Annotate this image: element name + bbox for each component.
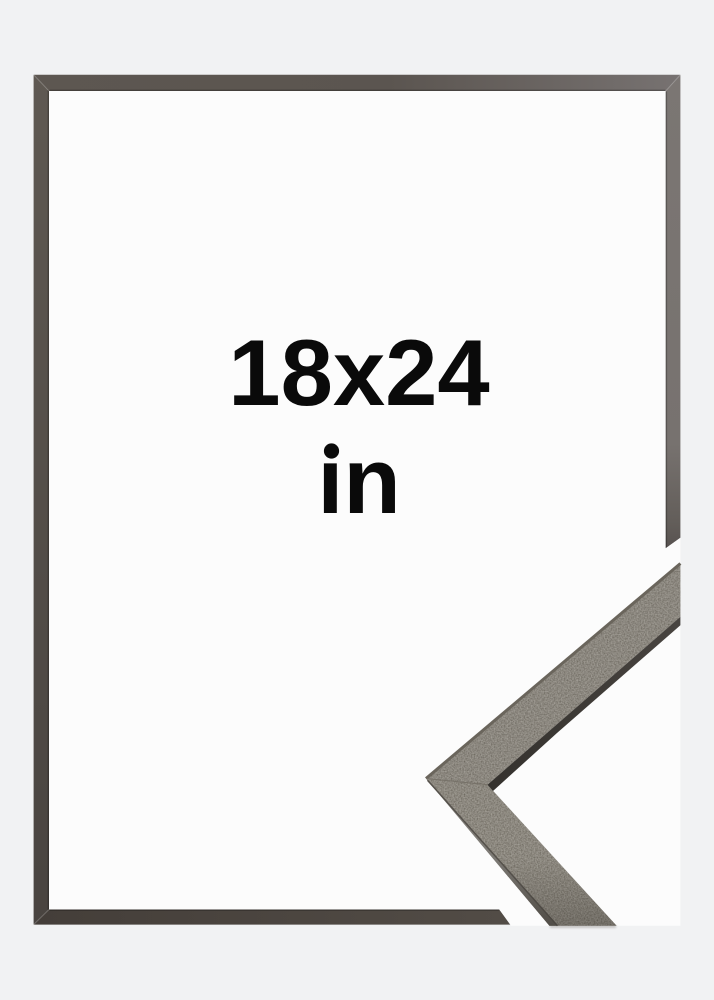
svg-text:18x24: 18x24	[228, 320, 489, 425]
